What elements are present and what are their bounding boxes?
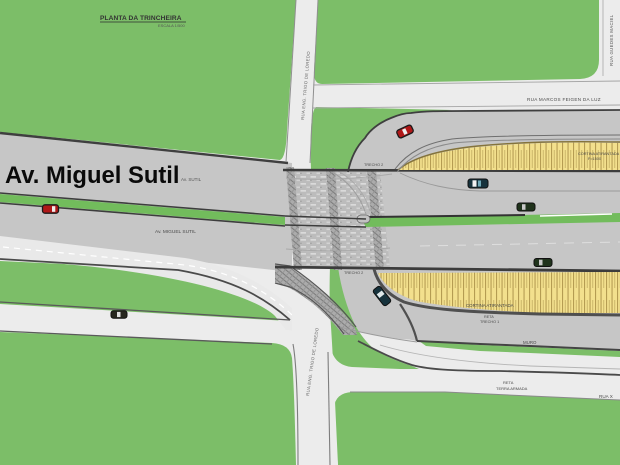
svg-text:ESCALA 1/500: ESCALA 1/500 [158,23,185,28]
svg-text:PLANTA DA TRINCHEIRA: PLANTA DA TRINCHEIRA [100,15,182,22]
svg-text:Av. MIGUEL SUTIL: Av. MIGUEL SUTIL [155,229,196,235]
svg-text:TERRA ARMADA: TERRA ARMADA [496,386,528,391]
svg-text:Av. Miguel Sutil: Av. Miguel Sutil [5,162,180,189]
svg-text:TRECHO 2: TRECHO 2 [344,271,363,275]
svg-text:F=1500: F=1500 [588,157,601,161]
svg-text:TRECHO 2: TRECHO 2 [364,163,383,167]
svg-text:CORTINA ATIRANTADA: CORTINA ATIRANTADA [466,303,514,308]
svg-text:MURO: MURO [523,340,537,345]
svg-text:CORTINA ATIRANTADA: CORTINA ATIRANTADA [578,152,620,156]
svg-text:Av. SUTIL: Av. SUTIL [181,177,202,182]
svg-text:RUA GUEDES MACIEL: RUA GUEDES MACIEL [609,14,614,66]
svg-text:RUA X: RUA X [599,394,613,399]
svg-text:RETA: RETA [484,315,494,319]
svg-text:RUA MARCOS FEIGEN DA LUZ: RUA MARCOS FEIGEN DA LUZ [527,97,601,102]
svg-text:RETA: RETA [503,380,514,385]
svg-text:TRECHO 1: TRECHO 1 [480,320,499,324]
